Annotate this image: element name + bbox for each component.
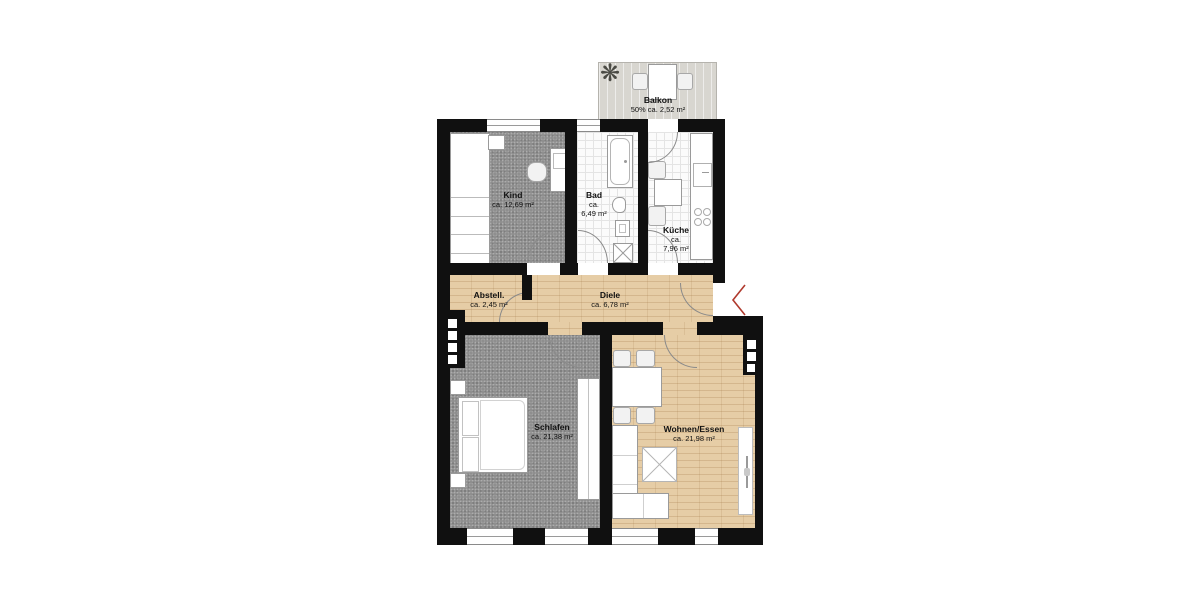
window-kind xyxy=(487,119,540,132)
room-name: Schlafen xyxy=(531,422,573,432)
plant-icon: ❋ xyxy=(600,62,620,86)
room-area: ca. 21,38 m² xyxy=(531,432,573,441)
wohnen-door-opening xyxy=(663,322,697,335)
dining-chair xyxy=(613,407,631,424)
room-area: 6,49 m² xyxy=(581,209,606,218)
shaft-left xyxy=(437,310,465,368)
balcony-label: Balkon 50% ca. 2,52 m² xyxy=(631,95,686,114)
dining-table xyxy=(612,367,662,407)
kind-door-opening xyxy=(527,263,560,275)
kitchen-sink xyxy=(693,163,712,187)
double-bed xyxy=(458,397,528,473)
stove-burner xyxy=(703,218,711,226)
room-name: Küche xyxy=(663,225,689,235)
room-area: ca. 21,98 m² xyxy=(664,434,725,443)
room-label-abstell: Abstell. ca. 2,45 m² xyxy=(470,290,508,309)
dining-chair xyxy=(636,407,655,424)
window-bad xyxy=(577,119,600,132)
pillow xyxy=(462,401,479,436)
window-wohnen-1 xyxy=(612,528,658,545)
shaft-right xyxy=(743,335,763,375)
kitchen-chair-top xyxy=(648,161,666,179)
room-name: Bad xyxy=(581,190,606,200)
wall-schlafen-wohnen xyxy=(600,335,612,528)
room-name: Abstell. xyxy=(470,290,508,300)
room-name: Kind xyxy=(492,190,534,200)
stove-burner xyxy=(694,208,702,216)
wall-right-upper xyxy=(713,119,725,283)
balcony-chair-right xyxy=(677,73,693,90)
kitchen-table xyxy=(654,179,682,206)
shower-x-icon xyxy=(614,244,632,262)
nightstand-top xyxy=(450,380,466,395)
stove-burner xyxy=(694,218,702,226)
floor-plan: ❋ xyxy=(437,62,763,545)
room-name: Diele xyxy=(591,290,629,300)
balcony-name: Balkon xyxy=(631,95,686,105)
room-label-kueche: Küche ca. 7,96 m² xyxy=(663,225,689,253)
room-area: ca. 2,45 m² xyxy=(470,300,508,309)
toilet xyxy=(612,197,626,213)
window-schlafen-1 xyxy=(467,528,513,545)
shower-tray xyxy=(613,243,633,263)
entry-direction-icon xyxy=(732,284,748,316)
wall-bad-kueche xyxy=(638,132,648,263)
room-label-wohnen: Wohnen/Essen ca. 21,98 m² xyxy=(664,424,725,443)
room-area: 7,96 m² xyxy=(663,244,689,253)
entry-opening xyxy=(713,283,725,316)
dining-chair xyxy=(613,350,631,367)
sofa-horizontal xyxy=(612,493,669,519)
bad-door-opening xyxy=(578,263,608,275)
wall-kind-bad xyxy=(565,132,577,263)
room-label-kind: Kind ca. 12,69 m² xyxy=(492,190,534,209)
room-label-schlafen: Schlafen ca. 21,38 m² xyxy=(531,422,573,441)
wardrobe xyxy=(450,133,490,267)
bathtub xyxy=(607,135,633,188)
kitchen-counter xyxy=(690,133,713,260)
room-area: ca. 12,69 m² xyxy=(492,200,534,209)
room-area: ca. xyxy=(581,200,606,209)
wall-below-entry xyxy=(713,316,763,335)
schlafen-door-opening xyxy=(548,322,582,335)
dining-chair xyxy=(636,350,655,367)
radiator xyxy=(738,427,753,515)
kueche-door-opening xyxy=(648,263,678,275)
desk-chair xyxy=(527,162,547,182)
wall-right-lower xyxy=(755,375,763,528)
room-name: Wohnen/Essen xyxy=(664,424,725,434)
shelf-box xyxy=(488,135,505,150)
kitchen-chair-bottom xyxy=(648,206,666,226)
window-schlafen-2 xyxy=(545,528,588,545)
bedroom-wardrobe xyxy=(577,378,600,500)
room-label-bad: Bad ca. 6,49 m² xyxy=(581,190,606,218)
stove-burner xyxy=(703,208,711,216)
balcony-chair-left xyxy=(632,73,648,90)
wall-abstell-stub xyxy=(522,275,532,300)
nightstand-bottom xyxy=(450,473,466,488)
room-area: ca. xyxy=(663,235,689,244)
balcony-door-opening xyxy=(648,119,678,132)
sink xyxy=(615,220,630,237)
room-label-diele: Diele ca. 6,78 m² xyxy=(591,290,629,309)
window-wohnen-2 xyxy=(695,528,718,545)
pillow xyxy=(462,437,479,472)
balcony-area: 50% ca. 2,52 m² xyxy=(631,105,686,114)
room-area: ca. 6,78 m² xyxy=(591,300,629,309)
coffee-table-x-icon xyxy=(643,448,676,481)
coffee-table xyxy=(642,447,677,482)
